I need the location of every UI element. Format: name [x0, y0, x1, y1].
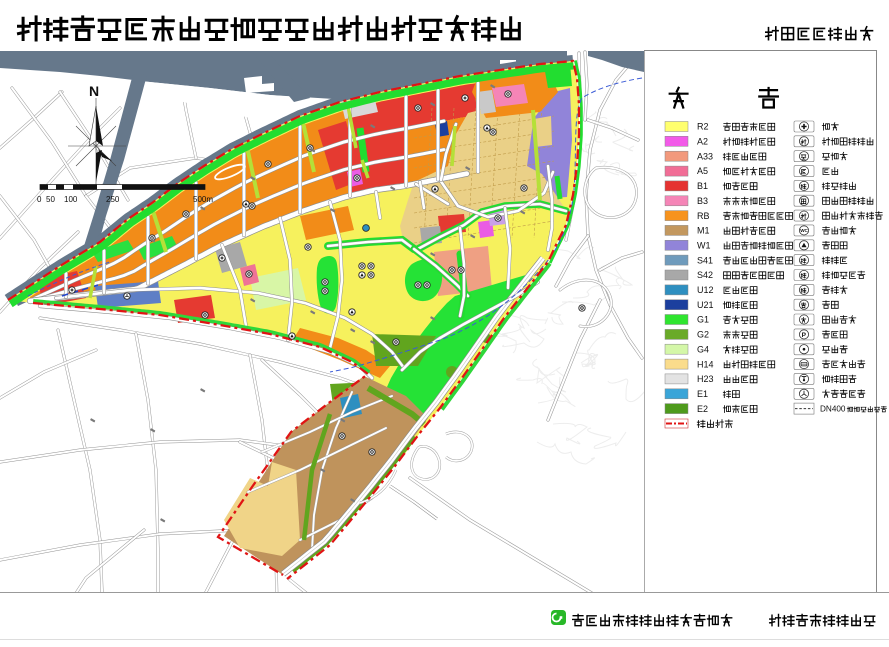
svg-text:H14: H14 [697, 359, 714, 369]
svg-text:A2: A2 [697, 137, 708, 147]
svg-text:A5: A5 [697, 166, 708, 176]
svg-text:B3: B3 [697, 196, 708, 206]
svg-text:50: 50 [46, 195, 55, 204]
svg-text:M1: M1 [697, 226, 710, 236]
svg-text:R2: R2 [697, 122, 709, 132]
svg-text:250: 250 [106, 195, 120, 204]
svg-text:100: 100 [64, 195, 78, 204]
svg-text:0: 0 [37, 195, 42, 204]
svg-text:U21: U21 [697, 300, 714, 310]
svg-text:B1: B1 [697, 181, 708, 191]
svg-text:S41: S41 [697, 255, 713, 265]
svg-text:WC: WC [800, 228, 808, 233]
svg-text:E2: E2 [697, 404, 708, 414]
svg-text:G2: G2 [697, 330, 709, 340]
svg-text:G4: G4 [697, 344, 709, 354]
svg-text:RB: RB [697, 211, 710, 221]
svg-text:500m: 500m [193, 195, 213, 204]
svg-text:G1: G1 [697, 315, 709, 325]
svg-text:A33: A33 [697, 151, 713, 161]
svg-text:DN400: DN400 [820, 405, 846, 414]
svg-text:N: N [89, 83, 99, 99]
svg-text:H23: H23 [697, 374, 714, 384]
svg-text:W1: W1 [697, 241, 711, 251]
svg-text:E1: E1 [697, 389, 708, 399]
svg-text:P: P [802, 332, 807, 339]
svg-text:S42: S42 [697, 270, 713, 280]
svg-text:U12: U12 [697, 285, 714, 295]
